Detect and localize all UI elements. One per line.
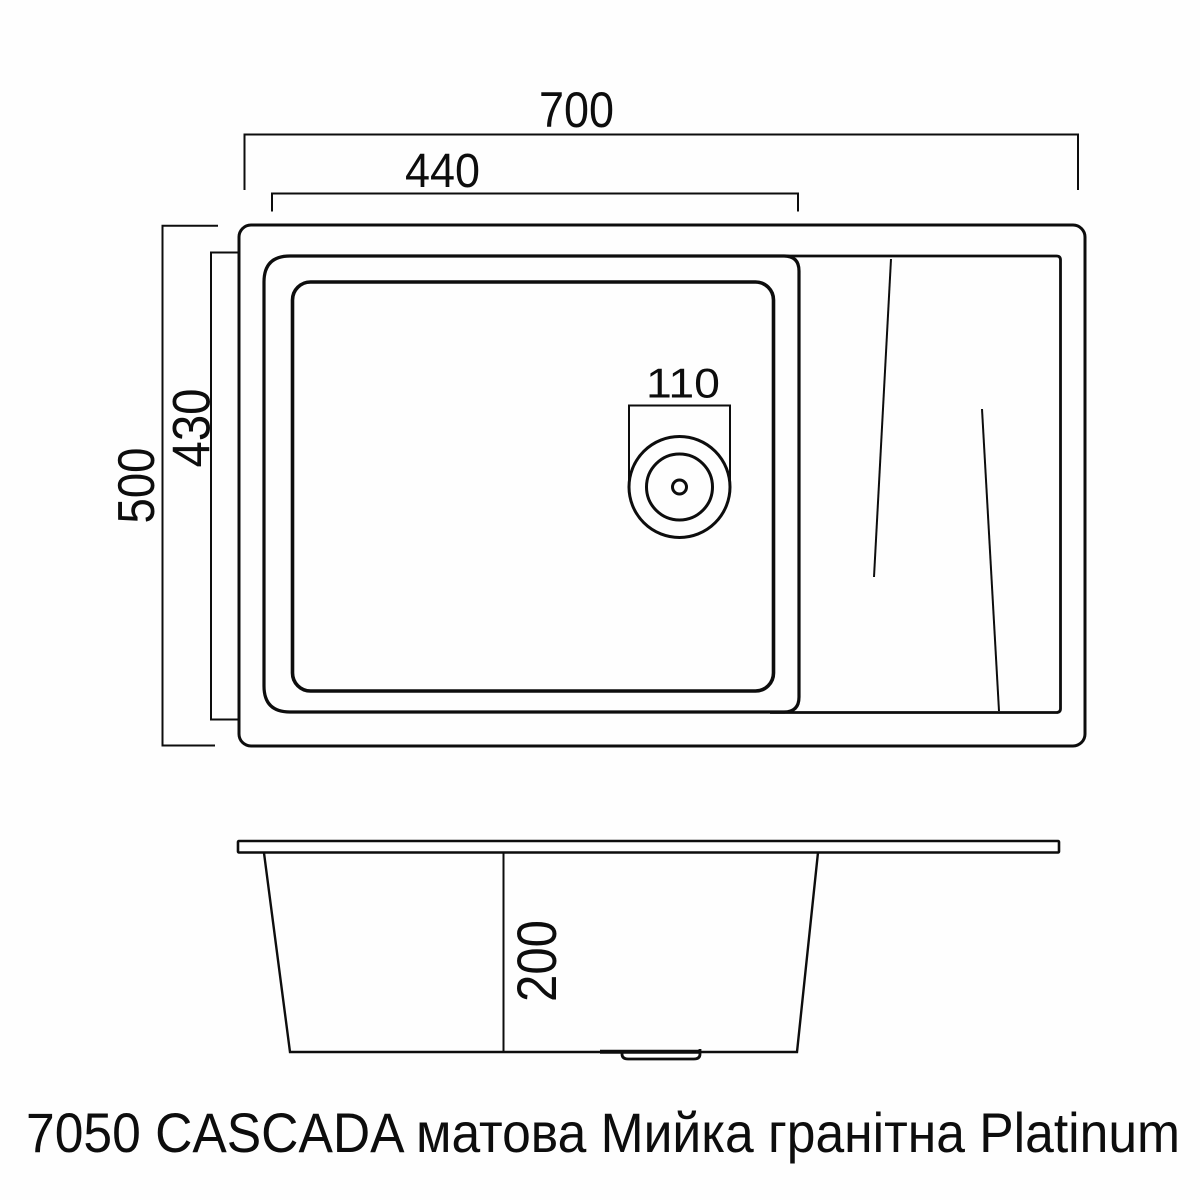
svg-text:440: 440 — [405, 145, 480, 198]
svg-text:200: 200 — [505, 920, 568, 1002]
svg-text:700: 700 — [539, 82, 614, 138]
svg-text:430: 430 — [163, 389, 222, 468]
svg-text:110: 110 — [646, 360, 720, 407]
svg-text:500: 500 — [108, 448, 166, 524]
svg-text:7050 CASCADA матова Мийка гран: 7050 CASCADA матова Мийка гранітна Plati… — [26, 1101, 1180, 1164]
